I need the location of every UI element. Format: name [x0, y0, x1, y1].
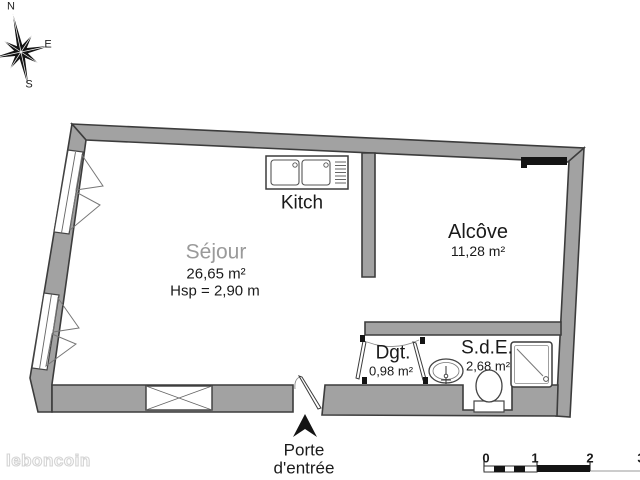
wall-right: [556, 148, 584, 417]
scale-tick-1: 1: [531, 452, 538, 465]
wall-above-bathroom: [365, 322, 561, 335]
floorplan-image: N E S Séjour 26,65 m² Hsp = 2,90 m Kitch…: [0, 0, 640, 480]
entrance-arrow-icon: [293, 414, 317, 437]
leboncoin-watermark: leboncoin: [6, 451, 91, 471]
kitchen-sink-icon: [266, 156, 348, 189]
floorplan-drawing: [0, 0, 640, 480]
room-label-degagement: Dgt.: [376, 344, 411, 363]
room-label-kitchen: Kitch: [281, 194, 323, 213]
alcove-black-bar: [521, 157, 567, 168]
room-area-sejour: 26,65 m²: [186, 267, 245, 282]
shower-icon: [511, 342, 552, 387]
compass-east-label: E: [44, 40, 51, 51]
entrance-door: [293, 376, 321, 437]
radiator-icon: [146, 386, 212, 410]
washbasin-icon: [429, 359, 463, 384]
window-lower: [32, 293, 79, 370]
room-area-salle-eau: 2,68 m²: [466, 360, 510, 373]
entrance-label-line2: d'entrée: [274, 460, 335, 477]
room-label-salle-eau: S.d.E.: [461, 339, 513, 358]
wall-divider-sejour-alcove: [362, 153, 375, 277]
room-area-alcove: 11,28 m²: [451, 244, 505, 258]
room-ceiling-height-sejour: Hsp = 2,90 m: [170, 284, 260, 299]
scale-tick-0: 0: [482, 452, 489, 465]
entrance-label-line1: Porte: [284, 442, 325, 459]
room-label-sejour: Séjour: [186, 242, 247, 263]
room-label-alcove: Alcôve: [448, 222, 508, 242]
wall-bottom-bathroom: [322, 385, 558, 416]
compass-south-label: S: [25, 80, 32, 91]
compass-north-label: N: [7, 2, 15, 13]
room-area-degagement: 0,98 m²: [369, 365, 413, 378]
scale-tick-2: 2: [586, 452, 593, 465]
scale-bar: [484, 461, 640, 472]
toilet-icon: [474, 370, 504, 412]
